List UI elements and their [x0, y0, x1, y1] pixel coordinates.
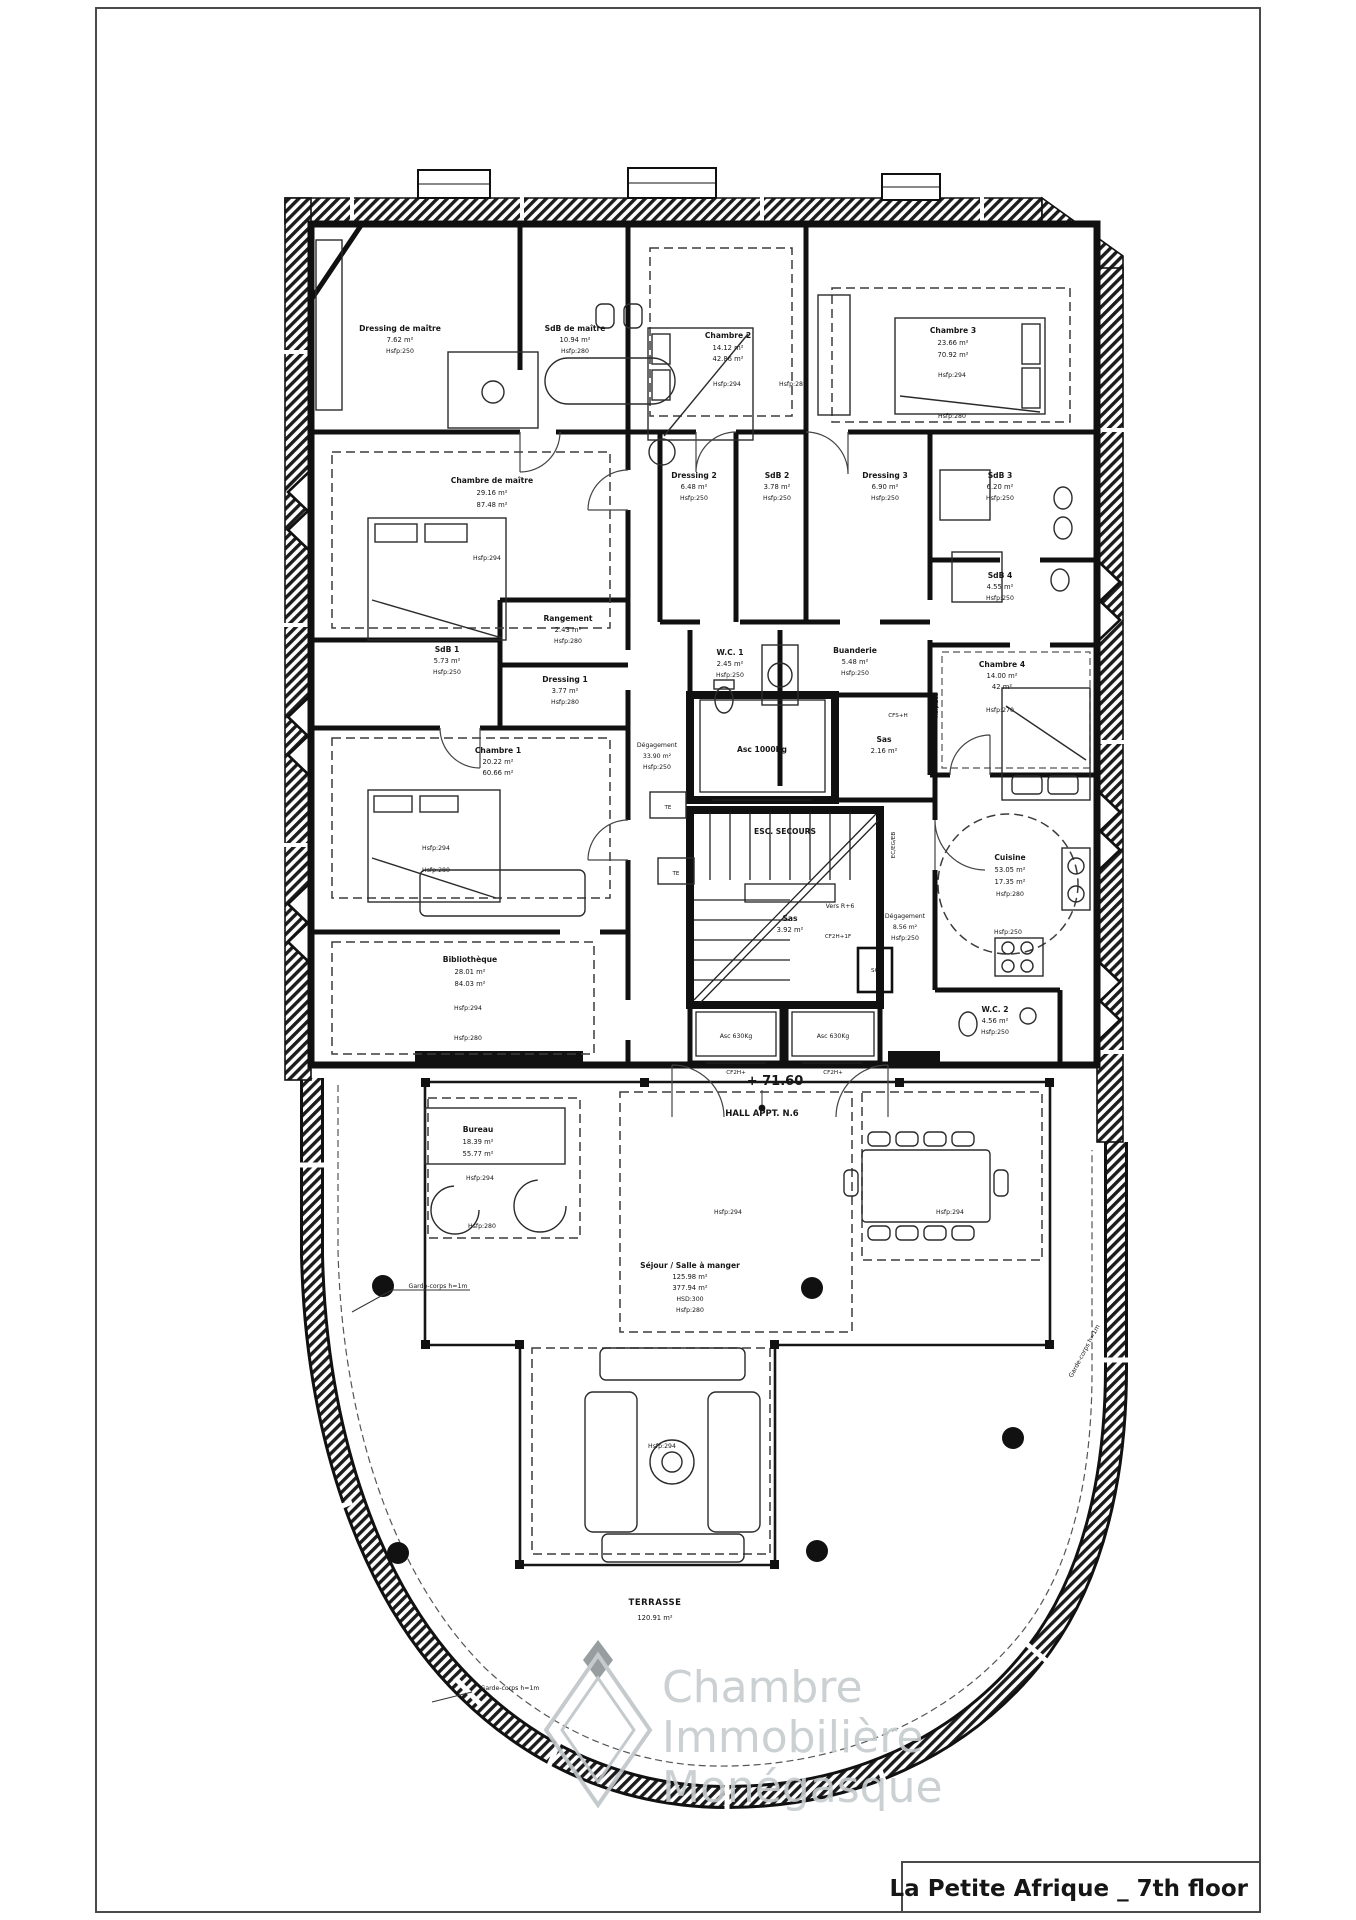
label-chambre-2-area1: 14.12 m² — [713, 344, 744, 352]
label-hall: HALL APPT. N.6 — [725, 1109, 799, 1119]
label-garde-corps-left: Garde-corps h=1m — [409, 1283, 468, 1290]
label-wc-2-area: 4.56 m² — [982, 1017, 1009, 1025]
label-sdb-4-area: 4.55 m² — [987, 583, 1014, 591]
label-sg: SG — [871, 968, 879, 974]
label-sdb-4: SdB 4 — [988, 571, 1013, 580]
label-chambre-maitre: Chambre de maître — [451, 476, 533, 485]
label-te-2: TE — [672, 871, 680, 877]
label-bureau-hsfp1: Hsfp:294 — [466, 1175, 494, 1182]
label-dressing-3: Dressing 3 — [862, 471, 908, 480]
label-bibliotheque-hsfp1: Hsfp:294 — [454, 1005, 482, 1012]
label-sdb-1: SdB 1 — [435, 645, 460, 654]
label-garde-corps-bottom: Garde-corps h=1m — [481, 1685, 540, 1692]
label-chambre-4-area2: 42 m² — [992, 683, 1012, 691]
label-chambre-1-hsfp1: Hsfp:294 — [422, 845, 450, 852]
label-level: + 71.60 — [747, 1074, 804, 1089]
label-cf2h-1f: CF2H+1F — [825, 934, 851, 940]
label-sejour-area2: 377.94 m² — [672, 1284, 708, 1292]
label-zone-sofa: Hsfp:294 — [648, 1443, 676, 1450]
watermark-line-2: Immobilière — [662, 1712, 924, 1763]
label-zone-dining: Hsfp:294 — [936, 1209, 964, 1216]
label-sas-2: Sas — [782, 914, 798, 923]
label-chambre-3: Chambre 3 — [930, 326, 976, 335]
label-asc-630-b: Asc 630Kg — [817, 1033, 850, 1040]
label-chambre-4: Chambre 4 — [979, 660, 1025, 669]
label-bureau-area2: 55.77 m² — [463, 1150, 494, 1158]
columns — [372, 1275, 1024, 1564]
label-dressing-3-area: 6.90 m² — [872, 483, 899, 491]
label-buanderie: Buanderie — [833, 646, 877, 655]
label-dressing-maitre: Dressing de maître — [359, 324, 441, 333]
label-asc-1000: Asc 1000Kg — [737, 745, 787, 754]
watermark-line-3: Monégasque — [662, 1762, 943, 1813]
label-sdb-1-area: 5.73 m² — [434, 657, 461, 665]
pavilion-glazing — [421, 1078, 1054, 1569]
label-bibliotheque-area1: 28.01 m² — [455, 968, 486, 976]
label-bureau: Bureau — [463, 1125, 494, 1134]
label-esc-secours: ESC. SECOURS — [754, 827, 816, 836]
label-terrasse: TERRASSE — [629, 1598, 682, 1608]
label-dressing-2: Dressing 2 — [671, 471, 717, 480]
label-chambre-3-area2: 70.92 m² — [938, 351, 969, 359]
label-wc-1-area: 2.45 m² — [717, 660, 744, 668]
label-chambre-2-area2: 42.86 m² — [713, 355, 744, 363]
label-chambre-1-area2: 60.66 m² — [483, 769, 514, 777]
label-chambre-1-hsfp2: Hsfp:280 — [422, 867, 450, 874]
label-dressing-1-area: 3.77 m² — [552, 687, 579, 695]
label-sejour-hsfp: Hsfp:280 — [676, 1307, 704, 1314]
label-sdb-1-hsfp: Hsfp:250 — [433, 669, 461, 676]
label-asc-630-a: Asc 630Kg — [720, 1033, 753, 1040]
label-cuisine-area2: 17.35 m² — [995, 878, 1026, 886]
label-degagement-2-area: 8.56 m² — [893, 924, 918, 931]
label-degagement-2-hsfp: Hsfp:250 — [891, 935, 919, 942]
label-bibliotheque: Bibliothèque — [443, 955, 497, 964]
label-dressing-2-hsfp: Hsfp:250 — [680, 495, 708, 502]
label-chambre-maitre-area2: 87.48 m² — [477, 501, 508, 509]
label-chambre-4-hsfp: Hsfp:270 — [986, 707, 1014, 714]
label-sdb-maitre-hsfp: Hsfp:280 — [561, 348, 589, 355]
label-sdb-4-hsfp: Hsfp:250 — [986, 595, 1014, 602]
label-cuisine: Cuisine — [994, 853, 1025, 862]
label-sdb-maitre-area: 10.94 m² — [560, 336, 591, 344]
label-chambre-2-hsfp1: Hsfp:294 — [713, 381, 741, 388]
label-te-1: TE — [664, 805, 672, 811]
label-sas-2-area: 3.92 m² — [777, 926, 804, 934]
label-sdb-3-hsfp: Hsfp:250 — [986, 495, 1014, 502]
label-degagement-2: Dégagement — [885, 912, 926, 920]
label-cf2h-a: CF2H+ — [726, 1070, 746, 1076]
label-sdb-3-area: 6.20 m² — [987, 483, 1014, 491]
label-rangement-area: 2.43 m² — [555, 626, 582, 634]
watermark-line-1: Chambre — [662, 1662, 863, 1713]
label-wc-2: W.C. 2 — [981, 1005, 1008, 1014]
label-rangement-hsfp: Hsfp:280 — [554, 638, 582, 645]
label-chambre-2-hsfp2: Hsfp:280 — [779, 381, 807, 388]
label-chambre-2: Chambre 2 — [705, 331, 751, 340]
label-sas-1-area: 2.16 m² — [871, 747, 898, 755]
label-vers-r6: Vers R+6 — [826, 903, 855, 910]
label-bureau-hsfp2: Hsfp:280 — [468, 1223, 496, 1230]
label-wc-2-hsfp: Hsfp:250 — [981, 1029, 1009, 1036]
label-sdb-maitre: SdB de maître — [545, 324, 606, 333]
label-ec-eg-eb: EC/EG/EB — [891, 832, 897, 859]
label-degagement-area: 33.90 m² — [643, 753, 672, 760]
label-dressing-3-hsfp: Hsfp:250 — [871, 495, 899, 502]
label-chambre-1: Chambre 1 — [475, 746, 521, 755]
label-dressing-1: Dressing 1 — [542, 675, 588, 684]
label-sdb-2-area: 3.78 m² — [764, 483, 791, 491]
label-wc-1: W.C. 1 — [716, 648, 743, 657]
label-hsfp285: Hsfp:285 — [934, 692, 940, 718]
label-dressing-maitre-hsfp: Hsfp:250 — [386, 348, 414, 355]
label-dressing-maitre-area: 7.62 m² — [387, 336, 414, 344]
label-sejour-area1: 125.98 m² — [672, 1273, 708, 1281]
label-chambre-maitre-area1: 29.16 m² — [477, 489, 508, 497]
label-bureau-area1: 18.39 m² — [463, 1138, 494, 1146]
label-bibliotheque-hsfp2: Hsfp:280 — [454, 1035, 482, 1042]
label-cfs-h: CFS+H — [888, 713, 907, 719]
label-chambre-3-hsfp1: Hsfp:294 — [938, 372, 966, 379]
label-garde-corps-right: Garde-corps h=1m — [1068, 1324, 1102, 1379]
sheet-title: La Petite Afrique _ 7th floor — [890, 1876, 1249, 1902]
label-zone-sejour-center: Hsfp:294 — [714, 1209, 742, 1216]
label-cuisine-hsfp1: Hsfp:280 — [996, 891, 1024, 898]
label-sejour-hsd: HSD:300 — [676, 1296, 703, 1303]
label-chambre-maitre-hsfp: Hsfp:294 — [473, 555, 501, 562]
label-degagement-hsfp: Hsfp:250 — [643, 764, 671, 771]
label-rangement: Rangement — [543, 614, 592, 623]
label-buanderie-area: 5.48 m² — [842, 658, 869, 666]
label-degagement: Dégagement — [637, 741, 678, 749]
label-cuisine-area1: 53.05 m² — [995, 866, 1026, 874]
label-chambre-3-hsfp2: Hsfp:280 — [938, 413, 966, 420]
label-wc-1-hsfp: Hsfp:250 — [716, 672, 744, 679]
label-cf2h-b: CF2H+ — [823, 1070, 843, 1076]
label-chambre-3-area1: 23.66 m² — [938, 339, 969, 347]
label-dressing-1-hsfp: Hsfp:280 — [551, 699, 579, 706]
label-sejour: Séjour / Salle à manger — [640, 1261, 740, 1270]
label-sdb-3: SdB 3 — [988, 471, 1013, 480]
label-terrasse-area: 120.91 m² — [637, 1614, 673, 1622]
label-cuisine-hsfp2: Hsfp:250 — [994, 929, 1022, 936]
label-chambre-1-area1: 20.22 m² — [483, 758, 514, 766]
label-sas-1: Sas — [876, 735, 892, 744]
label-buanderie-hsfp: Hsfp:250 — [841, 670, 869, 677]
label-bibliotheque-area2: 84.03 m² — [455, 980, 486, 988]
floorplan-sheet: Dressing de maître 7.62 m² Hsfp:250 SdB … — [0, 0, 1356, 1920]
label-sdb-2: SdB 2 — [765, 471, 790, 480]
label-chambre-4-area1: 14.00 m² — [987, 672, 1018, 680]
label-sdb-2-hsfp: Hsfp:250 — [763, 495, 791, 502]
label-dressing-2-area: 6.48 m² — [681, 483, 708, 491]
